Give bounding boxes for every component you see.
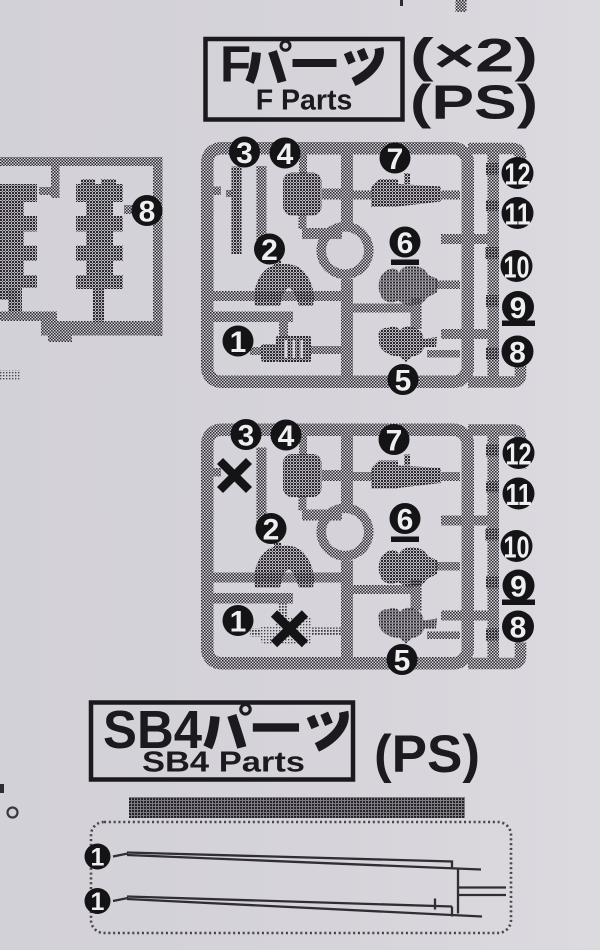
svg-text:(PS): (PS): [410, 77, 538, 130]
svg-text:5: 5: [394, 645, 411, 678]
svg-text:8: 8: [139, 196, 156, 229]
svg-text:(PS): (PS): [374, 725, 480, 784]
svg-text:F: F: [220, 36, 251, 93]
svg-text:1: 1: [91, 888, 105, 916]
svg-text:6: 6: [397, 504, 414, 537]
svg-text:5: 5: [395, 365, 412, 398]
svg-text:12: 12: [506, 436, 532, 471]
svg-text:1: 1: [230, 606, 247, 639]
svg-text:9: 9: [510, 292, 527, 325]
svg-text:3: 3: [238, 420, 255, 453]
svg-text:(×2): (×2): [410, 29, 538, 82]
svg-text:11: 11: [505, 196, 531, 231]
svg-text:1: 1: [91, 844, 105, 872]
svg-text:8: 8: [510, 612, 527, 645]
svg-text:12: 12: [505, 156, 531, 191]
svg-text:SB4 Parts: SB4 Parts: [142, 747, 305, 779]
svg-text:2: 2: [261, 234, 278, 267]
svg-text:1: 1: [230, 326, 247, 359]
svg-text:10: 10: [504, 529, 530, 564]
svg-text:6: 6: [397, 227, 414, 260]
svg-text:4: 4: [278, 420, 295, 453]
svg-text:4: 4: [277, 138, 294, 171]
svg-text:8: 8: [509, 337, 526, 370]
svg-text:F Parts: F Parts: [256, 85, 353, 117]
svg-text:10: 10: [504, 249, 530, 284]
svg-text:9: 9: [510, 571, 527, 604]
svg-text:7: 7: [386, 425, 403, 458]
svg-text:11: 11: [506, 477, 532, 512]
svg-text:7: 7: [387, 143, 404, 176]
svg-text:2: 2: [263, 514, 280, 547]
svg-text:3: 3: [236, 137, 253, 170]
